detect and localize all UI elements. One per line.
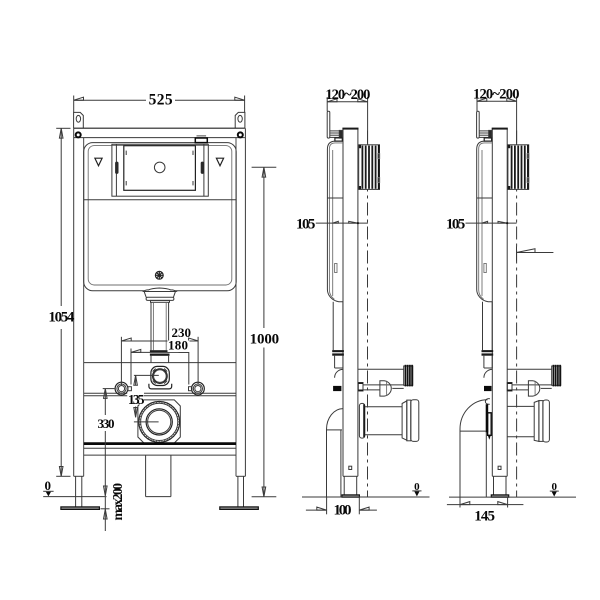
svg-text:135: 135: [128, 392, 145, 407]
svg-text:180: 180: [168, 338, 188, 353]
svg-text:525: 525: [149, 92, 173, 109]
svg-text:120~200: 120~200: [473, 86, 520, 102]
svg-text:max200: max200: [110, 483, 125, 521]
svg-text:120~200: 120~200: [325, 87, 370, 103]
svg-text:105: 105: [296, 216, 315, 232]
svg-text:105: 105: [446, 216, 465, 232]
svg-text:1054: 1054: [48, 310, 75, 326]
svg-text:0: 0: [45, 478, 52, 493]
svg-text:1000: 1000: [250, 332, 280, 348]
svg-text:145: 145: [474, 509, 495, 525]
svg-text:330: 330: [98, 416, 115, 431]
svg-text:100: 100: [334, 503, 352, 519]
